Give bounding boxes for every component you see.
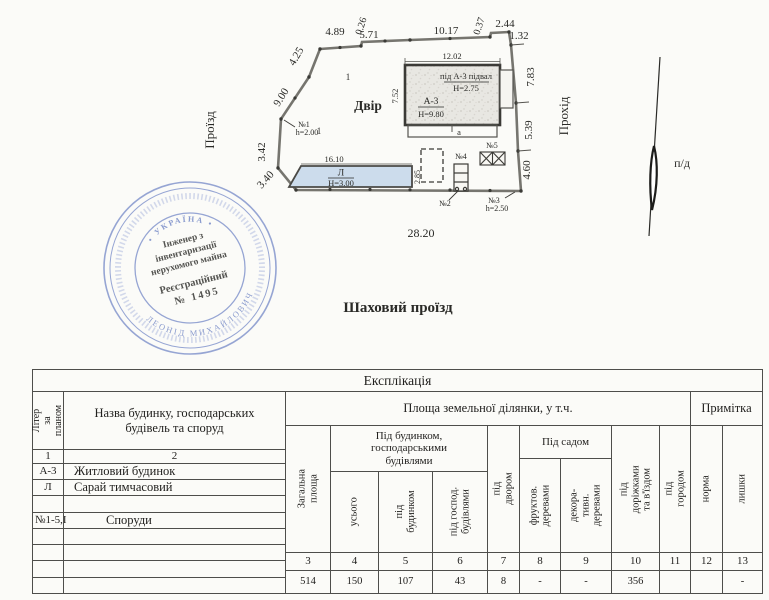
- value: 43: [455, 576, 466, 588]
- value-cell: 150: [330, 570, 379, 594]
- courtyard-mark-1: 1: [346, 72, 351, 82]
- col3-header-cell: Загальна площа: [285, 425, 331, 553]
- colnum-cell: 11: [659, 552, 691, 571]
- value: 514: [300, 576, 316, 588]
- left-num1: 1: [45, 450, 51, 463]
- col-num: 10: [630, 555, 641, 568]
- dim-4-60: 4.60: [521, 160, 533, 180]
- dim-4-25: 4.25: [286, 45, 306, 68]
- col8-header: фруктов. деревами: [528, 485, 551, 527]
- courtyard-mark-2: 1: [317, 126, 322, 136]
- row1-liter-cell: Л: [32, 479, 64, 496]
- col3-header: Загальна площа: [296, 467, 319, 511]
- dashed-structure: [421, 149, 443, 182]
- structure-5: [480, 152, 505, 165]
- house-height: Н=9.80: [418, 109, 444, 119]
- terrace-letter: а: [457, 127, 461, 137]
- row6-name-cell: [63, 560, 286, 578]
- col12-header: норма: [701, 473, 713, 504]
- col10-header: під доріжками та в'їздом: [618, 465, 653, 513]
- value-cell: -: [722, 570, 763, 594]
- row3-liter-cell: №1-5,І: [32, 512, 64, 529]
- colnum-cell: 13: [722, 552, 763, 571]
- note-header: Примітка: [701, 401, 751, 415]
- col5-header-cell: під будинком: [378, 471, 433, 553]
- dim-10-17: 10.17: [434, 25, 459, 37]
- house-left-dim: 7.52: [390, 89, 400, 104]
- col-num: 6: [457, 555, 463, 568]
- dim-5-71: 5.71: [359, 29, 378, 41]
- row4-name-cell: [63, 528, 286, 545]
- col1-header: Літер за планом: [32, 405, 65, 436]
- colnum-cell: 5: [378, 552, 433, 571]
- dim-28-20: 28.20: [408, 226, 435, 240]
- north-arrow: п/д: [649, 57, 690, 236]
- row2-name-cell: [63, 495, 286, 513]
- row-liter: Л: [44, 481, 51, 494]
- col-num: 12: [701, 555, 712, 568]
- dim-5-39: 5.39: [523, 120, 535, 140]
- row0-liter-cell: А-3: [32, 463, 64, 480]
- row5-name-cell: [63, 544, 286, 561]
- colnum-cell: 12: [690, 552, 723, 571]
- col-num: 4: [352, 555, 358, 568]
- col6-header-cell: під господ. будівлями: [432, 471, 488, 553]
- house-top-dim: 12.02: [442, 51, 461, 61]
- col-num: 7: [501, 555, 507, 568]
- label-dvir: Двір: [354, 98, 382, 113]
- dim-3-40: 3.40: [255, 168, 277, 191]
- value-cell: 356: [611, 570, 660, 594]
- table-title-cell: Експлікація: [32, 369, 763, 392]
- row5-liter-cell: [32, 544, 64, 561]
- row6-liter-cell: [32, 560, 64, 578]
- value-cell: 514: [285, 570, 331, 594]
- scanned-tech-passport-page: 12.02 7.52 під А-3 підвал Н=2.75 А-3 Н=9…: [0, 0, 769, 600]
- dim-3-42: 3.42: [256, 142, 268, 161]
- col7-header: під двором: [492, 473, 515, 505]
- col5-header: під будинком: [394, 486, 417, 539]
- row1-name-cell: Сарай тимчасовий: [63, 479, 286, 496]
- group-building-cell: Під будинком, господарськими будівлями: [330, 425, 488, 472]
- basement-title: під А-3 підвал: [440, 71, 493, 81]
- col-num: 9: [583, 555, 589, 568]
- label-street: Шаховий проїзд: [343, 300, 453, 316]
- row-name: Житловий будинок: [74, 464, 175, 478]
- row0-name-cell: Житловий будинок: [63, 463, 286, 480]
- row3-name-cell: Споруди: [63, 512, 286, 529]
- col7-header-cell: під двором: [487, 425, 520, 553]
- col6-header: під господ. будівлями: [448, 485, 471, 539]
- table-title: Експлікація: [364, 373, 432, 389]
- value-cell: -: [519, 570, 561, 594]
- col4-header-cell: усього: [330, 471, 379, 553]
- col-num: 3: [305, 555, 311, 568]
- colnum-cell: 9: [560, 552, 612, 571]
- shed-top-dim: 16.10: [324, 154, 343, 164]
- group-building-header: Під будинком, господарськими будівлями: [371, 430, 447, 468]
- group-garden-header: Під садом: [542, 436, 589, 449]
- row4-liter-cell: [32, 528, 64, 545]
- dim-0-37: 0.37: [472, 16, 488, 36]
- site-plan-drawing: 12.02 7.52 під А-3 підвал Н=2.75 А-3 Н=9…: [0, 0, 769, 364]
- house-porch: [500, 70, 513, 108]
- col10-header-cell: під доріжками та в'їздом: [611, 425, 660, 553]
- structure-5-label: №5: [486, 141, 498, 150]
- col2-header-cell: Назва будинку, господарських будівель та…: [63, 391, 286, 450]
- col4-header: усього: [349, 488, 361, 535]
- value-cell: -: [560, 570, 612, 594]
- col13-header: лишки: [737, 469, 749, 508]
- col-num: 8: [537, 555, 543, 568]
- structure-4-label: №4: [455, 152, 467, 161]
- value-cell: 8: [487, 570, 520, 594]
- value: -: [584, 576, 588, 588]
- registration-stamp: ЛЕОНІД МИХАЙЛОВИЧ • УКРАЇНА • Інженер з …: [86, 164, 295, 364]
- col11-header: під городом: [663, 471, 686, 508]
- label-prokhid: Прохід: [556, 96, 571, 135]
- value-cell: 107: [378, 570, 433, 594]
- col13-header-cell: лишки: [722, 425, 763, 553]
- colnum-cell: 7: [487, 552, 520, 571]
- colnum-cell: 4: [330, 552, 379, 571]
- value: 107: [398, 576, 414, 588]
- value: 356: [628, 576, 644, 588]
- dim-1-32: 1.32: [509, 30, 528, 42]
- house-a3: 12.02 7.52 під А-3 підвал Н=2.75 А-3 Н=9…: [390, 51, 513, 137]
- row-liter: А-3: [39, 465, 56, 478]
- col9-header-cell: декора- тивн. деревами: [560, 458, 612, 553]
- colnum-cell: 10: [611, 552, 660, 571]
- row7-name-cell: [63, 577, 286, 594]
- row-name: Сарай тимчасовий: [74, 480, 172, 494]
- col12-header-cell: норма: [690, 425, 723, 553]
- dim-2-44: 2.44: [495, 18, 515, 30]
- label-proizd: Проїзд: [202, 111, 217, 149]
- row-liter: №1-5,І: [35, 514, 67, 527]
- shed-liter: Л: [338, 169, 345, 179]
- col2-header: Назва будинку, господарських будівель та…: [94, 406, 254, 435]
- col9-header: декора- тивн. деревами: [569, 480, 604, 530]
- dim-4-89: 4.89: [325, 26, 345, 38]
- label-pd: п/д: [674, 156, 690, 170]
- basement-height: Н=2.75: [453, 83, 479, 93]
- annotation-3-height: h=2.50: [486, 204, 509, 213]
- colnum-cell: 3: [285, 552, 331, 571]
- shed-l: 16.10 Л Н=3.00 2.85: [289, 154, 422, 188]
- left-num2-cell: 2: [63, 449, 286, 464]
- house-liter: А-3: [424, 97, 439, 107]
- value-cell: [690, 570, 723, 594]
- value: -: [741, 576, 745, 588]
- annotation-2: №2: [439, 199, 451, 208]
- value: -: [538, 576, 542, 588]
- group-garden-cell: Під садом: [519, 425, 612, 459]
- col-num: 5: [403, 555, 409, 568]
- col8-header-cell: фруктов. деревами: [519, 458, 561, 553]
- dim-7-83: 7.83: [525, 67, 537, 87]
- row7-liter-cell: [32, 577, 64, 594]
- col-num: 13: [737, 555, 748, 568]
- col1-header-cell: Літер за планом: [32, 391, 64, 450]
- annotation-1-height: h=2.00: [296, 128, 319, 137]
- area-header-cell: Площа земельної ділянки, у т.ч.: [285, 391, 691, 426]
- area-header: Площа земельної ділянки, у т.ч.: [403, 401, 572, 415]
- note-header-cell: Примітка: [690, 391, 763, 426]
- value: 150: [347, 576, 363, 588]
- value-cell: [659, 570, 691, 594]
- shed-height: Н=3.00: [328, 178, 354, 188]
- col11-header-cell: під городом: [659, 425, 691, 553]
- value-cell: 43: [432, 570, 488, 594]
- left-num1-cell: 1: [32, 449, 64, 464]
- col-num: 11: [670, 555, 681, 568]
- colnum-cell: 6: [432, 552, 488, 571]
- left-num2: 2: [172, 450, 178, 463]
- row2-liter-cell: [32, 495, 64, 513]
- row-name: Споруди: [106, 513, 152, 527]
- value: 8: [501, 576, 506, 588]
- structure-4: [454, 164, 468, 191]
- colnum-cell: 8: [519, 552, 561, 571]
